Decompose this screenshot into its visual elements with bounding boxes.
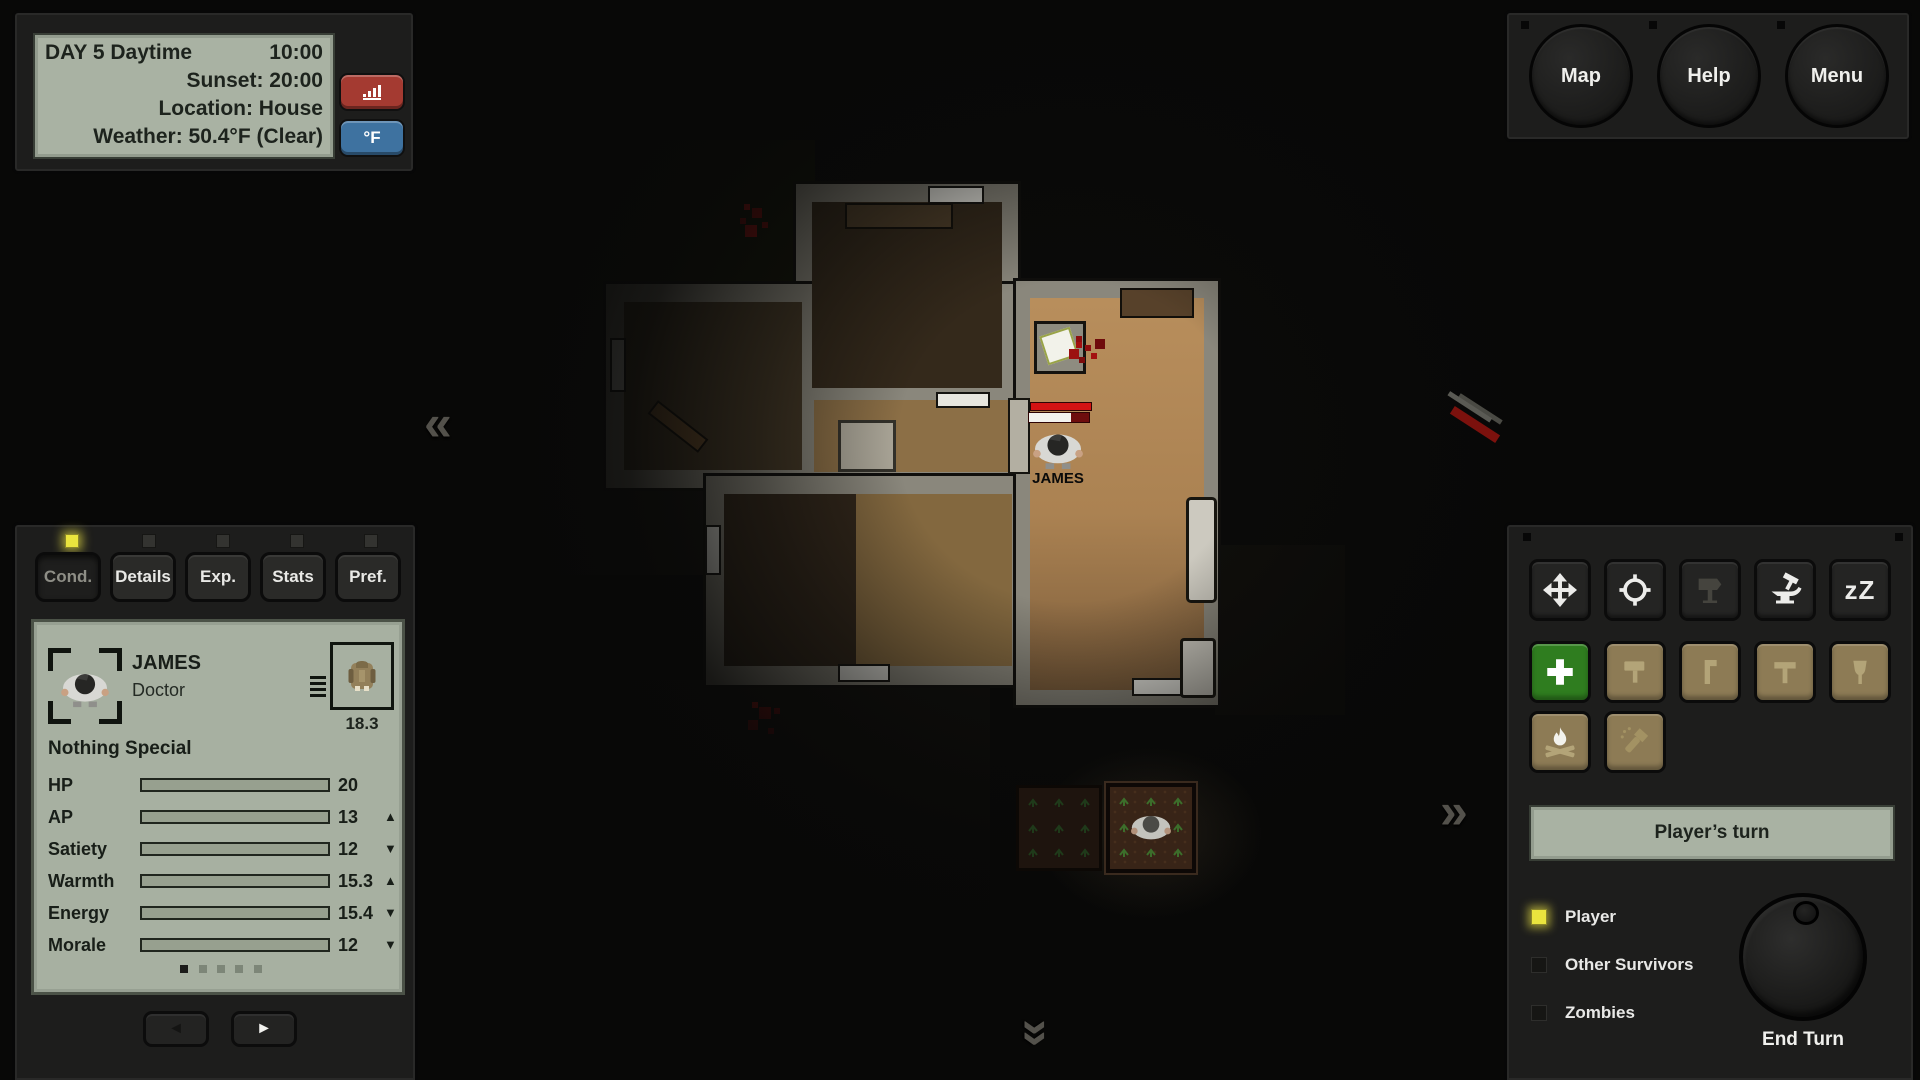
sleep-button[interactable]: zZ [1829,559,1891,621]
player-unit[interactable]: JAMES [1026,402,1090,488]
temperature-unit-button[interactable]: °F [339,119,405,157]
stat-bar [140,810,330,824]
info-panel: DAY 5 Daytime 10:00 Sunset: 20:00 Locati… [12,10,416,174]
game-screen: JAMES « » » DAY 5 Daytime 10:00 Sunset: … [0,0,1920,1080]
legend-zombies: Zombies [1531,1001,1635,1025]
hammer-button[interactable] [1754,641,1816,703]
stat-bar [140,906,330,920]
character-name: JAMES [132,652,201,675]
weather-label: Weather: 50.4°F (Clear) [45,123,323,151]
craft-button[interactable] [1754,559,1816,621]
map-button[interactable]: Map [1529,24,1633,128]
hammer-icon [1769,656,1801,688]
character-trait: Nothing Special [48,738,192,760]
trend-down-icon: ▼ [384,841,397,856]
page-dot-active[interactable] [180,965,188,973]
page-dot[interactable] [217,965,225,973]
info-screen: DAY 5 Daytime 10:00 Sunset: 20:00 Locati… [33,33,335,159]
legend-player: Player [1531,905,1616,929]
tab-condition[interactable]: Cond. [35,552,101,602]
condition-card: JAMES Doctor 18.3 Nothing Special HP 20 [31,619,405,995]
help-button[interactable]: Help [1657,24,1761,128]
tab-stats[interactable]: Stats [260,552,326,602]
tab-led-active [65,534,79,548]
portrait-sprite [59,664,111,708]
stat-row-hp: HP 20 [34,774,408,800]
temp-unit-label: °F [363,128,380,148]
anvil-craft-icon [1767,572,1803,608]
end-turn-button[interactable] [1739,893,1867,1021]
tab-pref[interactable]: Pref. [335,552,401,602]
player-sprite [1030,424,1086,470]
player-health-bar [1028,412,1090,423]
bar-chart-icon [361,84,383,100]
day-label: DAY 5 Daytime [45,39,192,67]
action-panel: zZ [1504,522,1916,1080]
backpack-icon [346,651,378,699]
tab-led [142,534,156,548]
tab-exp[interactable]: Exp. [185,552,251,602]
stats-chart-button[interactable] [339,73,405,111]
menu-button[interactable]: Menu [1785,24,1889,128]
screw [1895,533,1903,541]
page-indicator [34,960,408,978]
player-legend-swatch [1531,909,1547,925]
carry-weight: 18.3 [326,714,398,734]
stat-row-morale: Morale 12 ▼ [34,934,408,960]
sledgehammer-button[interactable] [1604,641,1666,703]
tab-led [364,534,378,548]
page-dot[interactable] [254,965,262,973]
tab-details[interactable]: Details [110,552,176,602]
tab-led [216,534,230,548]
map-scroll-right[interactable]: » [1440,786,1468,836]
trend-up-icon: ▲ [384,809,397,824]
turn-status-bar: Player’s turn [1529,805,1895,861]
flashlight-icon [1618,725,1652,759]
page-dot[interactable] [199,965,207,973]
screw [1649,21,1657,29]
stat-row-warmth: Warmth 15.3 ▲ [34,870,408,896]
signpost-icon [1693,573,1727,607]
target-icon [1618,573,1652,607]
screw [1777,21,1785,29]
stat-bar [140,778,330,792]
sunset-label: Sunset: 20:00 [45,67,323,95]
stat-bar [140,874,330,888]
flashlight-button[interactable] [1604,711,1666,773]
prev-page-button[interactable]: ◄ [143,1011,209,1047]
crowbar-button[interactable] [1679,641,1741,703]
legend-other-survivors: Other Survivors [1531,953,1694,977]
move-icon [1543,573,1577,607]
inventory-list-icon[interactable] [310,676,326,698]
end-turn-knob-dot [1793,901,1819,925]
survivor-unit[interactable] [1127,806,1175,846]
target-button[interactable] [1604,559,1666,621]
player-name-label: JAMES [1018,470,1098,487]
campfire-button[interactable] [1529,711,1591,773]
character-role: Doctor [132,680,185,701]
sledgehammer-icon [1619,656,1651,688]
tab-led [290,534,304,548]
trend-down-icon: ▼ [384,937,397,952]
player-alert-bar [1030,402,1092,411]
end-turn-label: End Turn [1739,1029,1867,1051]
shovel-button[interactable] [1829,641,1891,703]
trend-down-icon: ▼ [384,905,397,920]
stat-row-ap: AP 13 ▲ [34,806,408,832]
shovel-icon [1844,656,1876,688]
stat-bar [140,938,330,952]
heal-button[interactable] [1529,641,1591,703]
character-panel: Cond. Details Exp. Stats Pref. JAMES Doc… [12,522,418,1080]
trend-up-icon: ▲ [384,873,397,888]
signpost-button[interactable] [1679,559,1741,621]
survivors-legend-swatch [1531,957,1547,973]
sleep-icon: zZ [1845,575,1876,606]
map-scroll-down[interactable]: » [1013,1019,1063,1047]
sprouts [1019,788,1099,868]
screw [1523,533,1531,541]
stat-bar [140,842,330,856]
next-page-button[interactable]: ► [231,1011,297,1047]
page-dot[interactable] [235,965,243,973]
survivor-sprite [1127,806,1175,846]
heal-plus-icon [1543,655,1577,689]
crowbar-icon [1694,656,1726,688]
garden-plot-dark[interactable] [1016,785,1102,871]
screw [1521,21,1529,29]
move-button[interactable] [1529,559,1591,621]
zombies-legend-swatch [1531,1005,1547,1021]
stat-row-energy: Energy 15.4 ▼ [34,902,408,928]
character-portrait [48,648,122,724]
backpack-button[interactable] [330,642,394,710]
stat-row-satiety: Satiety 12 ▼ [34,838,408,864]
map-scroll-left[interactable]: « [424,398,452,448]
location-label: Location: House [45,95,323,123]
menu-panel: Map Help Menu [1504,10,1912,142]
clock: 10:00 [269,39,323,67]
campfire-icon [1543,725,1577,759]
